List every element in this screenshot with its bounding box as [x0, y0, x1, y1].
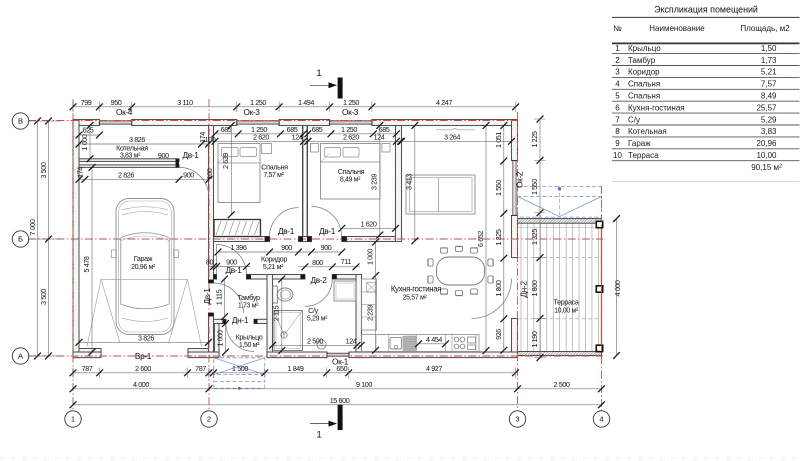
svg-text:1 800: 1 800 — [530, 280, 539, 296]
svg-text:2 600: 2 600 — [135, 364, 151, 373]
svg-text:Экспликация помещений: Экспликация помещений — [654, 4, 758, 14]
svg-text:1 000: 1 000 — [215, 330, 224, 346]
svg-text:9: 9 — [615, 139, 620, 148]
svg-text:926: 926 — [494, 329, 503, 340]
svg-text:3 500: 3 500 — [39, 289, 48, 305]
svg-text:685: 685 — [312, 125, 323, 134]
svg-text:Тамбур: Тамбур — [628, 56, 656, 65]
svg-text:20,96 м²: 20,96 м² — [131, 264, 156, 271]
svg-text:1 550: 1 550 — [530, 179, 539, 195]
svg-text:6: 6 — [615, 103, 620, 112]
svg-text:Ок-2: Ок-2 — [515, 171, 525, 188]
svg-text:1: 1 — [316, 430, 321, 441]
svg-text:Кухня-гостиная: Кухня-гостиная — [628, 103, 685, 112]
svg-text:1 051: 1 051 — [494, 132, 503, 148]
svg-text:Дн-1: Дн-1 — [232, 315, 249, 325]
svg-text:В: В — [18, 117, 23, 126]
svg-text:1 396: 1 396 — [231, 243, 247, 252]
svg-text:7,57: 7,57 — [761, 80, 777, 89]
svg-text:3,83 м²: 3,83 м² — [120, 153, 141, 160]
svg-text:5,21 м²: 5,21 м² — [263, 264, 284, 271]
svg-text:2: 2 — [207, 415, 211, 424]
svg-text:Котельная: Котельная — [116, 144, 148, 153]
svg-text:1 620: 1 620 — [361, 219, 377, 228]
svg-text:Спальня: Спальня — [338, 167, 365, 176]
svg-text:25,57: 25,57 — [756, 103, 777, 112]
svg-text:2 620: 2 620 — [343, 133, 359, 142]
svg-text:С/у: С/у — [628, 115, 640, 124]
svg-text:80: 80 — [206, 258, 214, 267]
svg-text:2 500: 2 500 — [554, 380, 570, 389]
svg-text:Терраса: Терраса — [628, 151, 659, 160]
svg-text:7 000: 7 000 — [28, 219, 37, 235]
svg-text:Котельная: Котельная — [628, 127, 667, 136]
svg-text:№: № — [613, 24, 622, 33]
svg-text:124: 124 — [346, 337, 357, 346]
svg-text:3 264: 3 264 — [444, 133, 460, 142]
svg-text:Ок-3: Ок-3 — [243, 107, 260, 117]
svg-text:1,73 м²: 1,73 м² — [238, 303, 259, 310]
svg-text:1 000: 1 000 — [365, 249, 374, 265]
svg-text:1 800: 1 800 — [494, 280, 503, 296]
svg-text:Терраса: Терраса — [553, 298, 578, 307]
svg-text:2 500: 2 500 — [307, 337, 323, 346]
svg-text:2 239: 2 239 — [365, 305, 374, 321]
svg-text:5,29 м²: 5,29 м² — [307, 316, 328, 323]
svg-text:3 110: 3 110 — [177, 98, 193, 107]
svg-text:4 454: 4 454 — [426, 335, 442, 344]
svg-text:1,50: 1,50 — [761, 44, 777, 53]
svg-text:Кухня-гостиная: Кухня-гостиная — [391, 285, 441, 294]
svg-text:Крыльцо: Крыльцо — [628, 44, 661, 53]
svg-text:1 190: 1 190 — [530, 331, 539, 347]
svg-text:900: 900 — [321, 243, 332, 252]
svg-text:Дн-2: Дн-2 — [519, 281, 529, 298]
svg-text:1 494: 1 494 — [298, 98, 314, 107]
svg-text:Крыльцо: Крыльцо — [236, 333, 263, 342]
svg-text:787: 787 — [82, 364, 93, 373]
svg-text:С/у: С/у — [308, 306, 318, 315]
svg-text:15 600: 15 600 — [330, 396, 350, 405]
svg-text:100: 100 — [205, 135, 216, 144]
svg-text:3 500: 3 500 — [39, 162, 48, 178]
svg-text:Дв-2: Дв-2 — [310, 275, 327, 285]
svg-text:Площадь, м2: Площадь, м2 — [740, 24, 790, 33]
svg-text:800: 800 — [312, 258, 323, 267]
svg-text:Гараж: Гараж — [134, 254, 153, 263]
svg-text:6 652: 6 652 — [476, 231, 485, 247]
svg-text:1: 1 — [316, 68, 321, 79]
svg-text:7,57 м²: 7,57 м² — [263, 172, 284, 179]
svg-text:1 250: 1 250 — [343, 98, 359, 107]
svg-text:Дв-1: Дв-1 — [182, 150, 199, 160]
svg-text:1 500: 1 500 — [232, 364, 248, 373]
svg-text:Вр-1: Вр-1 — [135, 351, 152, 361]
svg-text:1,73: 1,73 — [761, 56, 777, 65]
svg-text:1 115: 1 115 — [214, 289, 223, 305]
svg-text:900: 900 — [281, 243, 292, 252]
svg-text:5 478: 5 478 — [82, 256, 91, 272]
svg-text:9 100: 9 100 — [356, 380, 372, 389]
svg-text:4 000: 4 000 — [133, 380, 149, 389]
svg-text:1,50 м²: 1,50 м² — [239, 342, 260, 349]
svg-text:8,49: 8,49 — [761, 92, 777, 101]
svg-text:Тамбур: Тамбур — [237, 293, 260, 302]
svg-text:787: 787 — [195, 364, 206, 373]
svg-text:4 927: 4 927 — [426, 364, 442, 373]
svg-text:950: 950 — [111, 98, 122, 107]
svg-text:8: 8 — [615, 127, 620, 136]
svg-text:3,83: 3,83 — [761, 127, 777, 136]
svg-text:Коридор: Коридор — [261, 255, 287, 264]
svg-text:4: 4 — [599, 415, 603, 424]
svg-text:Б: Б — [18, 235, 23, 244]
svg-text:2 115: 2 115 — [272, 305, 281, 321]
svg-text:3: 3 — [515, 415, 519, 424]
svg-text:Ок-4: Ок-4 — [116, 107, 133, 117]
svg-text:10,00 м²: 10,00 м² — [554, 308, 579, 315]
svg-text:Дв-1: Дв-1 — [319, 226, 336, 236]
svg-text:5,29: 5,29 — [761, 115, 777, 124]
svg-text:Спальня: Спальня — [261, 163, 288, 172]
svg-text:90,15 м2: 90,15 м2 — [751, 163, 782, 172]
svg-text:20,96: 20,96 — [756, 139, 777, 148]
svg-text:1 325: 1 325 — [530, 229, 539, 245]
svg-text:10,00: 10,00 — [756, 151, 777, 160]
svg-text:2 826: 2 826 — [118, 171, 134, 180]
svg-text:Спальня: Спальня — [628, 92, 660, 101]
svg-text:2 620: 2 620 — [253, 133, 269, 142]
svg-text:Гараж: Гараж — [628, 139, 651, 148]
svg-text:900: 900 — [158, 151, 169, 160]
svg-text:8,49 м²: 8,49 м² — [340, 177, 361, 184]
svg-text:4 000: 4 000 — [613, 280, 622, 296]
svg-text:5,21: 5,21 — [761, 68, 777, 77]
svg-text:Наименование: Наименование — [649, 24, 705, 33]
svg-text:2 639: 2 639 — [221, 153, 230, 169]
svg-text:10: 10 — [613, 151, 622, 160]
svg-text:124: 124 — [292, 133, 303, 142]
svg-text:1: 1 — [71, 415, 75, 424]
svg-text:1 849: 1 849 — [288, 364, 304, 373]
svg-text:1 325: 1 325 — [494, 229, 503, 245]
svg-text:25,57 м²: 25,57 м² — [403, 295, 428, 302]
svg-text:4 247: 4 247 — [436, 98, 452, 107]
svg-text:100: 100 — [205, 168, 214, 179]
svg-text:3: 3 — [615, 68, 620, 77]
svg-text:1 225: 1 225 — [530, 131, 539, 147]
svg-text:Дв-1: Дв-1 — [278, 226, 295, 236]
svg-text:3 826: 3 826 — [138, 334, 154, 343]
svg-text:1 250: 1 250 — [250, 98, 266, 107]
svg-text:799: 799 — [81, 98, 92, 107]
svg-text:900: 900 — [183, 170, 194, 179]
svg-text:Ок-3: Ок-3 — [342, 107, 359, 117]
svg-text:Коридор: Коридор — [628, 68, 660, 77]
svg-text:3 826: 3 826 — [129, 135, 145, 144]
svg-text:1 550: 1 550 — [494, 180, 503, 196]
svg-text:Спальня: Спальня — [628, 80, 660, 89]
svg-text:1: 1 — [615, 44, 620, 53]
svg-text:711: 711 — [341, 257, 352, 266]
svg-text:7: 7 — [615, 115, 620, 124]
svg-text:Ок-1: Ок-1 — [332, 356, 349, 366]
svg-text:Дв-1: Дв-1 — [225, 265, 242, 275]
svg-text:3 239: 3 239 — [370, 174, 379, 190]
svg-text:2: 2 — [615, 56, 620, 65]
svg-text:5: 5 — [615, 92, 620, 101]
svg-text:124: 124 — [374, 133, 385, 142]
svg-text:Дв-1: Дв-1 — [202, 288, 212, 305]
svg-text:174: 174 — [76, 167, 85, 178]
svg-text:4: 4 — [615, 80, 620, 89]
svg-text:3 413: 3 413 — [405, 174, 414, 190]
